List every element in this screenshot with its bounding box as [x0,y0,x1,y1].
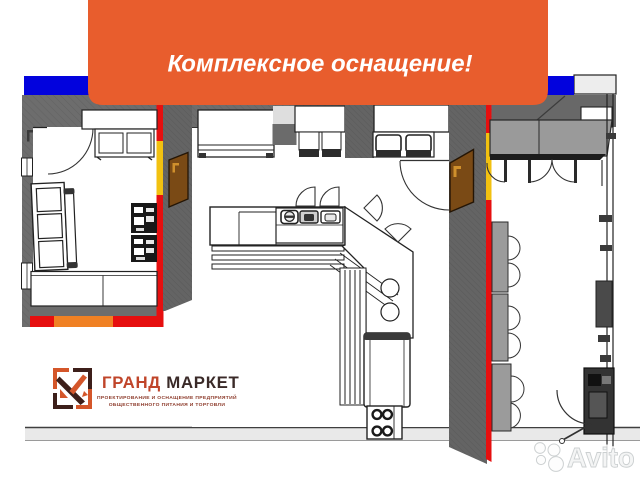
svg-text:ГРАНД МАРКЕТ: ГРАНД МАРКЕТ [102,373,240,392]
svg-text:Комплексное оснащение!: Комплексное оснащение! [167,51,472,78]
svg-text:ОБЩЕСТВЕННОГО ПИТАНИЯ И ТОРГОВ: ОБЩЕСТВЕННОГО ПИТАНИЯ И ТОРГОВЛИ [109,402,226,408]
svg-text:Avito: Avito [567,442,635,473]
